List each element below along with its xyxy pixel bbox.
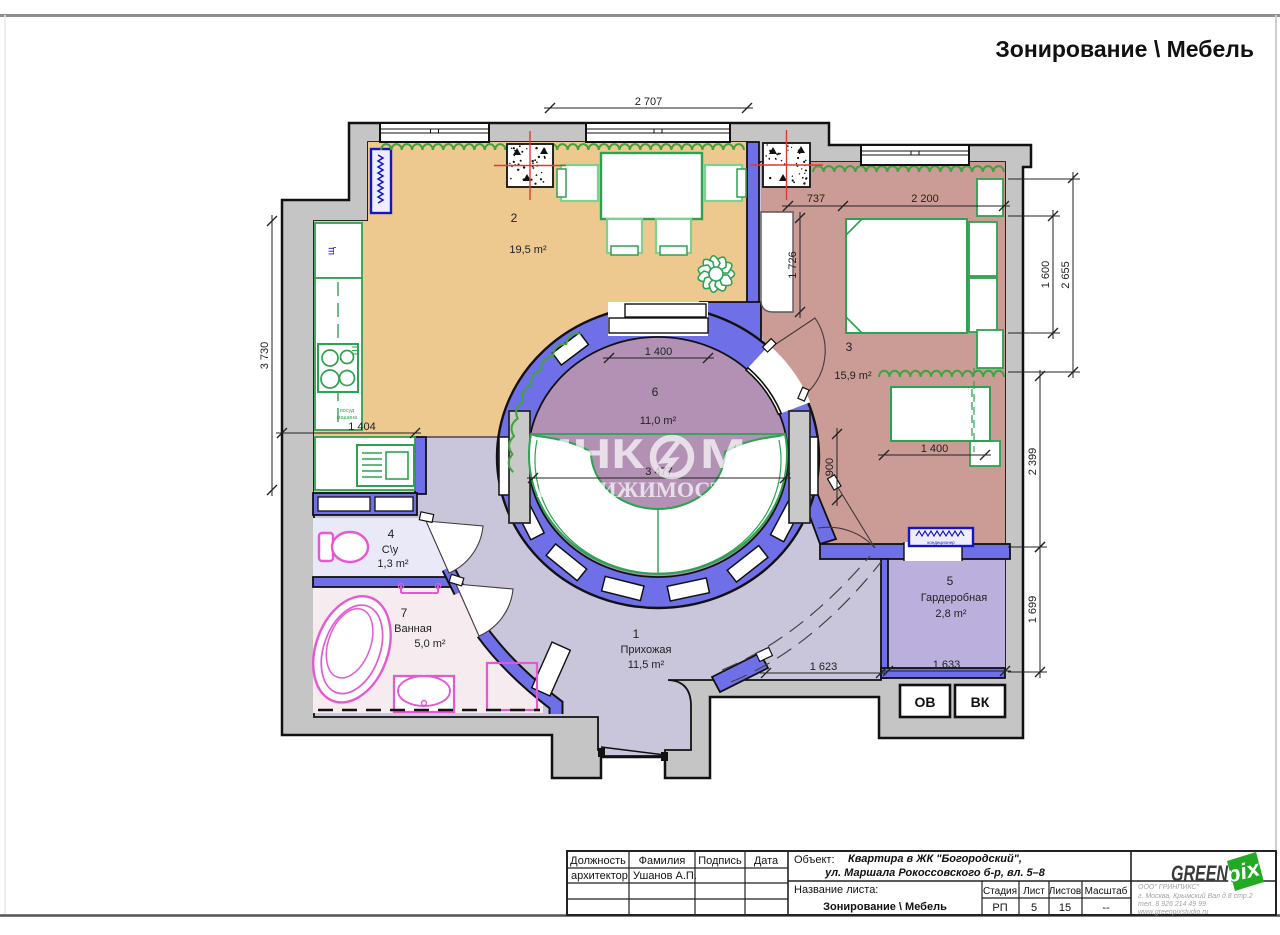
svg-text:г. Москва, Крымский Вал д.8 с: г. Москва, Крымский Вал д.8 стр.2 [1138,892,1253,900]
svg-text:Подпись: Подпись [698,855,742,867]
svg-text:6: 6 [652,385,659,399]
svg-text:2 655: 2 655 [1060,261,1072,289]
svg-text:ИНК: ИНК [534,430,644,477]
svg-text:1,3 m²: 1,3 m² [377,558,409,570]
svg-text:Гардеробная: Гардеробная [921,592,988,604]
svg-text:Ванная: Ванная [394,623,432,635]
svg-text:Фамилия: Фамилия [639,855,686,867]
svg-text:ул. Маршала Рокоссовского б-р,: ул. Маршала Рокоссовского б-р, вл. 5–8 [824,867,1046,879]
svg-text:1 699: 1 699 [1027,596,1039,624]
svg-text:посуд: посуд [340,408,355,414]
svg-text:1 600: 1 600 [1040,261,1052,289]
svg-text:7: 7 [401,606,408,620]
svg-text:Квартира в ЖК "Богородский",: Квартира в ЖК "Богородский", [848,853,1022,865]
svg-text:1: 1 [633,627,640,641]
svg-text:15,9 m²: 15,9 m² [834,370,872,382]
svg-text:Стадия: Стадия [983,886,1017,897]
svg-text:ВК: ВК [971,694,990,710]
svg-text:C\у: C\у [382,544,399,556]
svg-text:Листов: Листов [1049,886,1082,897]
svg-text:кондиционер: кондиционер [927,540,955,545]
svg-text:www.greenpixstudio.ru: www.greenpixstudio.ru [1138,909,1209,916]
svg-text:1 623: 1 623 [810,661,838,673]
svg-text:Зонирование \ Мебель: Зонирование \ Мебель [995,36,1254,62]
svg-text:Лист: Лист [1023,886,1045,897]
svg-text:НЕДВИЖИМОСТЬ: НЕДВИЖИМОСТЬ [537,477,740,502]
svg-text:Дата: Дата [754,855,779,867]
svg-text:5,0 m²: 5,0 m² [414,638,446,650]
svg-text:ОВ: ОВ [915,694,936,710]
svg-text:11,0 m²: 11,0 m² [640,415,677,427]
svg-text:2 707: 2 707 [635,96,663,108]
svg-text:19,5 m²: 19,5 m² [509,244,547,256]
svg-text:тел. 8 926 214 49 99.: тел. 8 926 214 49 99. [1138,901,1208,908]
svg-text:5: 5 [1031,902,1037,914]
svg-text:1 400: 1 400 [921,443,949,455]
svg-text:1 726: 1 726 [787,251,799,279]
svg-text:2,8 m²: 2,8 m² [935,608,967,620]
svg-text:ООО" ГРИНПИКС": ООО" ГРИНПИКС" [1138,884,1199,891]
svg-text:РП: РП [992,902,1007,914]
svg-text:15: 15 [1059,902,1071,914]
svg-text:3 730: 3 730 [259,342,271,370]
svg-text:11,5 m²: 11,5 m² [628,659,665,671]
svg-text:Ушанов А.П.: Ушанов А.П. [633,870,697,882]
svg-text:5: 5 [947,574,954,588]
svg-text:1 633: 1 633 [933,659,961,671]
svg-text:--: -- [1102,902,1110,914]
svg-text:GREEN: GREEN [1171,861,1229,886]
svg-text:Прихожая: Прихожая [621,644,672,656]
svg-text:архитектор: архитектор [571,870,628,882]
svg-text:Название листа:: Название листа: [794,884,878,896]
svg-text:М: М [700,430,746,477]
svg-text:Зонирование \ Мебель: Зонирование \ Мебель [823,901,947,913]
svg-text:4: 4 [388,527,395,541]
svg-text:737: 737 [807,193,825,205]
svg-text:3: 3 [846,340,853,354]
svg-text:900: 900 [824,458,836,476]
svg-text:2: 2 [511,211,518,225]
svg-text:1 400: 1 400 [645,346,673,358]
svg-text:щ: щ [326,247,337,255]
svg-text:2 399: 2 399 [1027,448,1039,476]
svg-text:Должность: Должность [570,855,626,867]
svg-text:Объект:: Объект: [794,854,835,866]
svg-text:1 404: 1 404 [348,421,376,433]
svg-text:Масштаб: Масштаб [1085,885,1128,897]
svg-text:2 200: 2 200 [911,193,939,205]
